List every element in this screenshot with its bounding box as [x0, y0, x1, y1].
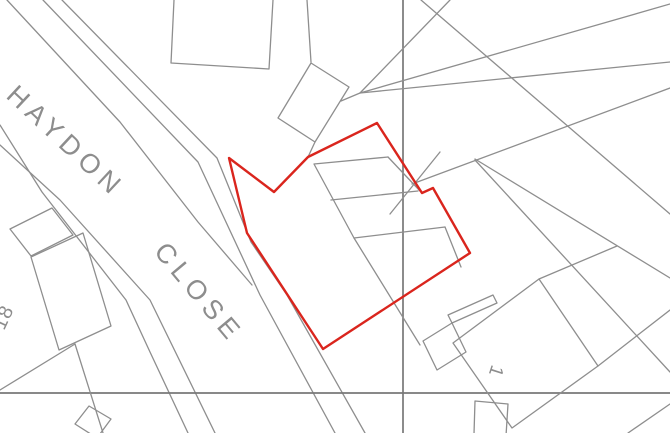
building-diamond [278, 63, 349, 142]
road-edge-east-wall-1 [43, 0, 335, 433]
building-18-garage [10, 208, 73, 256]
property-boundary-outline [229, 123, 470, 349]
building-house-1-outbuilding [474, 401, 508, 433]
building-18-shed [75, 406, 111, 433]
road-label-haydon: HAYDON [1, 79, 131, 203]
fence-hub-ray-lower [360, 62, 670, 93]
fence-diagonal-long [421, 0, 670, 214]
building-house-1-porch-strip [448, 295, 497, 323]
building-house-1-porch-square [423, 323, 466, 370]
road-edge-east-kerb [7, 0, 252, 285]
building-top-square [171, 0, 273, 69]
red-boundary [229, 123, 470, 349]
building-terrace-right-edge [388, 157, 421, 192]
house-number-18-label: 18 [0, 302, 19, 333]
fence-east-lower [475, 160, 670, 372]
fence-east-middle [475, 159, 670, 278]
fence-18-west [0, 344, 75, 390]
road-label-close: CLOSE [148, 237, 249, 349]
fence-hub-ray-upper [360, 4, 670, 93]
house-number-1-label: 1 [484, 362, 507, 379]
boundary-lines [0, 0, 670, 433]
map-viewport: HAYDON CLOSE 18 1 [0, 0, 670, 433]
fence-plot1-north [539, 246, 617, 279]
road-edge-east-wall-2 [62, 0, 365, 433]
fence-plot1-east [598, 310, 670, 366]
buildings [10, 0, 598, 433]
fence-top-stub [307, 0, 311, 62]
site-plan-map: HAYDON CLOSE 18 1 [0, 0, 670, 433]
fence-corner-clip [628, 404, 670, 433]
